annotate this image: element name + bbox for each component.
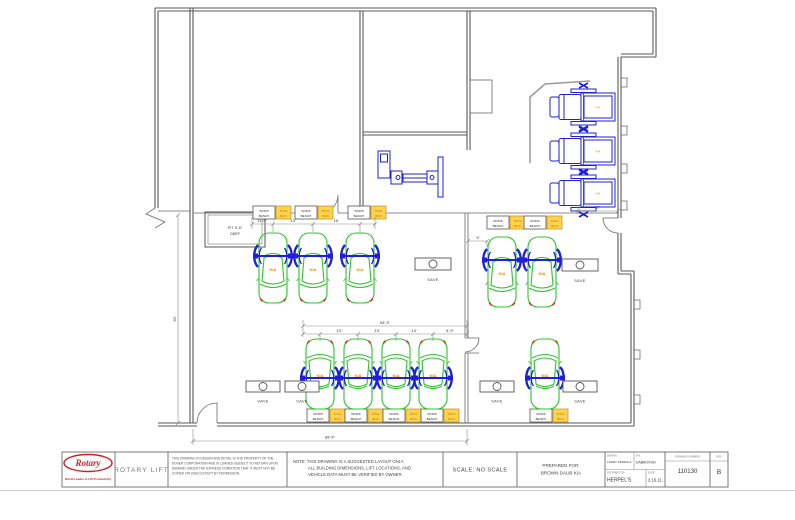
pn-label: P.N.	[636, 454, 641, 458]
bench-label: BENCH	[351, 417, 362, 421]
bench-label: BENCH	[354, 214, 365, 218]
car-badge: KIA	[355, 373, 362, 378]
rotary-logo: Rotary World Leader in Lift Productivity	[64, 455, 112, 482]
truck-badge: KIA	[596, 150, 601, 154]
property-notice-line: COPIED OR USED EXCEPT BY PERMISSION.	[172, 472, 240, 476]
bench-label: WORK	[493, 219, 504, 223]
bench-label: WORK	[301, 209, 312, 213]
save-station: SAVE	[480, 381, 514, 404]
truck-icon	[550, 83, 615, 131]
floor-plan-drawing: PIT, 5'-6" DEEP WORK BENCH TOOL BOX WORK…	[0, 0, 795, 520]
distributor-value: HERPEL'S	[607, 478, 632, 484]
wall-top	[155, 8, 656, 11]
dim-text: 13'	[290, 218, 295, 223]
toolbox-label: BOX	[448, 417, 455, 421]
door-divider-wall	[465, 338, 479, 353]
property-notice-line: DOVER CORPORATION AND IS LOANED SUBJECT …	[172, 462, 279, 466]
save-label: SAVE	[296, 399, 308, 404]
dim-text: 13'	[374, 328, 379, 333]
save-station: SAVE	[285, 381, 319, 404]
bench-label: WORK	[351, 412, 362, 416]
toolbox-label: TOOL	[371, 412, 380, 416]
toolbox-label: TOOL	[333, 412, 342, 416]
property-notice: THIS DRAWING IN DESIGN AND DETAIL IS THE…	[172, 457, 279, 476]
work-bench: WORK BENCH TOOL BOX	[421, 409, 459, 422]
save-station: SAVE	[415, 258, 451, 282]
equipment-part	[438, 157, 443, 197]
toolbox-label: BOX	[322, 214, 329, 218]
bench-label: BENCH	[427, 417, 438, 421]
drawing-sheet: PIT, 5'-6" DEEP WORK BENCH TOOL BOX WORK…	[0, 0, 795, 520]
toolbox-label: TOOL	[447, 412, 456, 416]
drawing-number-label: DRAWING NUMBER	[675, 455, 700, 459]
toolbox-label: BOX	[514, 224, 521, 228]
work-bench: WORK BENCH TOOL BOX	[530, 409, 568, 422]
drawing-info: DRAWN LARRY KENDALL P.N. DABROVSKI DISTR…	[607, 454, 722, 484]
wall-bottom	[158, 423, 634, 426]
pit-label: PIT, 5'-6"	[228, 226, 243, 230]
car-badge: KIA	[542, 373, 549, 378]
wall-break-symbol	[146, 208, 190, 228]
layout-note: NOTE: THIS DRAWING IS A SUGGESTED LAYOUT…	[293, 459, 411, 477]
drawn-label: DRAWN	[607, 454, 617, 458]
dim-line-offset	[466, 239, 489, 247]
bench-label: BENCH	[536, 417, 547, 421]
bench-label: BENCH	[301, 214, 312, 218]
wall-mid-vertical	[360, 11, 363, 213]
wall-room-right	[467, 11, 470, 150]
dim-text: 13'	[336, 328, 341, 333]
wall-room-bottom	[363, 132, 467, 135]
toolbox-label: TOOL	[550, 219, 559, 223]
toolbox-label: TOOL	[409, 412, 418, 416]
save-label: SAVE	[574, 278, 586, 283]
car-badge: KIA	[499, 271, 506, 276]
layout-note-line: NOTE: THIS DRAWING IS A SUGGESTED LAYOUT…	[293, 459, 404, 464]
work-bench: WORK BENCH TOOL BOX	[383, 409, 421, 422]
layout-note-line: ALL BUILDING DIMENSIONS, LIFT LOCATIONS,…	[308, 466, 411, 471]
rev-label: REV	[716, 455, 722, 459]
wall-left-outer	[155, 8, 158, 208]
work-bench: WORK BENCH TOOL BOX	[295, 206, 333, 219]
prepared-for-value: BROWN DAUB KIA	[541, 471, 582, 476]
toolbox-label: BOX	[557, 417, 564, 421]
work-bench: WORK BENCH TOOL BOX	[307, 409, 345, 422]
bench-label: WORK	[530, 219, 541, 223]
equipment-part	[430, 176, 434, 180]
property-notice-line: THIS DRAWING IN DESIGN AND DETAIL IS THE…	[172, 457, 274, 461]
dim-text: 60'	[172, 316, 177, 321]
truck-badge: KIA	[596, 192, 601, 196]
save-station: SAVE	[562, 259, 598, 283]
bench-label: BENCH	[389, 417, 400, 421]
prepared-for: PREPARED FOR: BROWN DAUB KIA	[541, 463, 582, 476]
wall-top-right-jog	[621, 8, 656, 57]
car-badge: KIA	[539, 271, 546, 276]
rotary-logo-text: Rotary	[74, 458, 101, 468]
dim-text: 9'-9"	[446, 328, 455, 333]
dim-text: 13'	[411, 328, 416, 333]
drawn-value: LARRY KENDALL	[607, 460, 632, 464]
dim-text: 10'	[594, 205, 599, 210]
wall-right	[618, 57, 634, 426]
save-station: SAVE	[563, 381, 597, 404]
work-bench: WORK BENCH TOOL BOX	[348, 206, 386, 219]
equipment-part	[396, 176, 400, 180]
company-name: ROTARY LIFT	[114, 467, 169, 474]
truck-badge: KIA	[596, 106, 601, 110]
toolbox-label: TOOL	[513, 219, 522, 223]
date-label: DATE	[648, 471, 655, 475]
door-bottom-wall	[197, 403, 217, 423]
rotary-logo-tagline: World Leader in Lift Productivity	[65, 477, 112, 481]
bench-label: WORK	[313, 412, 324, 416]
bench-label: WORK	[427, 412, 438, 416]
prepared-for-label: PREPARED FOR:	[542, 463, 579, 468]
equipment-part	[378, 151, 390, 178]
toolbox-label: BOX	[375, 214, 382, 218]
truck-icon	[550, 127, 615, 175]
bench-label: BENCH	[493, 224, 504, 228]
toolbox-label: BOX	[551, 224, 558, 228]
layout-note-line: VEHICLE DATA MUST BE VERIFIED BY OWNER.	[308, 472, 403, 477]
pn-value: DABROVSKI	[636, 461, 656, 465]
wall-notch	[470, 80, 492, 113]
alignment-equipment	[378, 151, 443, 197]
wall-divider-right	[465, 213, 468, 423]
car-badge: KIA	[317, 373, 324, 378]
work-bench: WORK BENCH TOOL BOX	[345, 409, 383, 422]
car-badge: KIA	[310, 267, 317, 272]
toolbox-label: BOX	[280, 214, 287, 218]
dim-text: 53'-3"	[380, 320, 391, 325]
pit-label-depth: DEEP	[230, 232, 240, 236]
bench-label: WORK	[259, 209, 270, 213]
equipment-part	[427, 171, 438, 184]
title-block: Rotary World Leader in Lift Productivity…	[0, 452, 795, 491]
toolbox-label: TOOL	[374, 209, 383, 213]
truck-bays: KIA KIA KIA	[550, 83, 615, 217]
toolbox-label: TOOL	[556, 412, 565, 416]
toolbox-label: BOX	[334, 417, 341, 421]
toolbox-label: BOX	[410, 417, 417, 421]
equipment-part	[381, 154, 388, 162]
bench-label: WORK	[536, 412, 547, 416]
distributor-label: DISTRIBUTOR	[607, 471, 625, 475]
save-station: SAVE	[246, 381, 280, 404]
bench-label: BENCH	[530, 224, 541, 228]
bench-label: WORK	[354, 209, 365, 213]
car-badge: KIA	[430, 373, 437, 378]
save-label: SAVE	[257, 399, 269, 404]
date-value: 2.16.11	[648, 478, 662, 483]
car-badge: KIA	[393, 373, 400, 378]
wall-left-inner	[190, 8, 193, 423]
save-label: SAVE	[427, 277, 439, 282]
bench-label: WORK	[389, 412, 400, 416]
toolbox-label: BOX	[372, 417, 379, 421]
dim-text: 89'-4"	[325, 435, 336, 440]
rev-value: B	[717, 469, 721, 476]
property-notice-line: DEMAND UNDER THE EXPRESS CONDITION THAT …	[172, 467, 275, 471]
dim-text: 16'	[333, 218, 338, 223]
save-label: SAVE	[491, 399, 503, 404]
car-badge: KIA	[270, 267, 277, 272]
toolbox-label: TOOL	[279, 209, 288, 213]
work-bench: WORK BENCH TOOL BOX	[524, 216, 562, 229]
dim-text: 11'-9"	[257, 218, 267, 223]
dim-text: 6'	[477, 235, 480, 240]
save-label: SAVE	[574, 399, 586, 404]
work-bench: WORK BENCH TOOL BOX	[487, 216, 525, 229]
scale-text: SCALE: NO SCALE	[453, 468, 508, 474]
drawing-number-value: 110130	[678, 469, 698, 475]
car-badge: KIA	[357, 267, 364, 272]
bench-label: BENCH	[313, 417, 324, 421]
door-right-wall	[603, 218, 618, 233]
toolbox-label: TOOL	[321, 209, 330, 213]
truck-icon	[550, 169, 615, 217]
